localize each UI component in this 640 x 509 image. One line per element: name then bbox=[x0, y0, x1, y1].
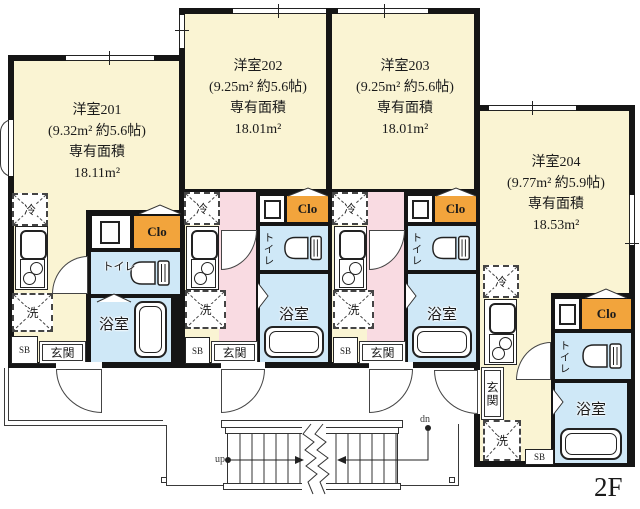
shelf-box-203 bbox=[408, 196, 432, 222]
window-tick bbox=[532, 101, 533, 115]
unit-204-text: 洋室204 (9.77m² 約5.9帖) 専有面積 18.53m² bbox=[482, 152, 630, 236]
closet-203: Clo bbox=[435, 196, 476, 222]
toilet-label-203: トイレ bbox=[409, 228, 423, 270]
unit-area-label: 専有面積 bbox=[14, 142, 180, 163]
fridge-box-202: 冷 bbox=[184, 192, 220, 225]
toilet-icon bbox=[580, 341, 626, 371]
unit-202-text: 洋室202 (9.25m² 約5.6帖) 専有面積 18.01m² bbox=[188, 56, 328, 140]
unit-area: 18.01m² bbox=[334, 119, 476, 140]
window-tick bbox=[175, 30, 189, 31]
entrance-203: 玄関 bbox=[359, 341, 406, 364]
unit-area-label: 専有面積 bbox=[482, 194, 630, 215]
window-201-top bbox=[66, 55, 154, 61]
bath-label-203: 浴室 bbox=[410, 304, 474, 322]
bathtub-icon bbox=[134, 301, 167, 358]
fridge-box-203: 冷 bbox=[332, 192, 368, 225]
up-arrow-origin bbox=[225, 457, 231, 463]
sink-icon bbox=[20, 230, 47, 260]
washer-label: 洗 bbox=[495, 435, 509, 447]
walkway-edge bbox=[4, 368, 5, 426]
unit-name: 洋室203 bbox=[334, 56, 476, 77]
entrance-label: 玄関 bbox=[50, 344, 74, 361]
unit-dims: (9.77m² 約5.9帖) bbox=[482, 173, 630, 194]
shelf-box-204 bbox=[555, 299, 579, 329]
entrance-opening-203 bbox=[369, 362, 413, 368]
kitchen-204 bbox=[484, 299, 517, 365]
shoebox-201: SB bbox=[11, 336, 38, 364]
walkway-edge bbox=[8, 420, 163, 421]
closet-door-chevron bbox=[287, 187, 329, 197]
unit-name: 洋室204 bbox=[482, 152, 630, 173]
bath-label-202: 浴室 bbox=[262, 304, 326, 322]
window-tick bbox=[384, 4, 385, 18]
shelf-box-201 bbox=[92, 216, 130, 248]
fridge-box-201: 冷 bbox=[12, 193, 48, 226]
washer-box-201: 洗 bbox=[12, 293, 53, 332]
bath-door-chevron bbox=[96, 293, 132, 303]
shelf-icon bbox=[412, 200, 429, 219]
sink-icon bbox=[339, 230, 366, 260]
unit-name: 洋室202 bbox=[188, 56, 328, 77]
shoebox-label: SB bbox=[19, 345, 30, 355]
unit-area-label: 専有面積 bbox=[334, 98, 476, 119]
unit-area-label: 専有面積 bbox=[188, 98, 328, 119]
closet-202: Clo bbox=[287, 196, 328, 222]
stove-icon bbox=[339, 259, 364, 288]
washer-label: 洗 bbox=[25, 307, 39, 319]
shelf-icon bbox=[100, 221, 120, 244]
shoebox-label: SB bbox=[534, 452, 545, 462]
stairs-up-label: up bbox=[203, 454, 225, 465]
closet-door-chevron bbox=[435, 187, 477, 197]
washer-box-204: 洗 bbox=[483, 420, 521, 461]
fridge-label: 冷 bbox=[23, 204, 37, 216]
window-203-top bbox=[338, 8, 428, 14]
entrance-202: 玄関 bbox=[211, 341, 258, 364]
closet-label: Clo bbox=[597, 306, 617, 322]
stove-icon bbox=[20, 259, 45, 288]
unit-name: 洋室201 bbox=[14, 100, 180, 121]
down-arrow-origin bbox=[425, 425, 431, 431]
fridge-label: 冷 bbox=[494, 276, 508, 288]
entrance-label: 玄関 bbox=[370, 344, 394, 361]
entrance-opening-202 bbox=[221, 362, 265, 368]
closet-label: Clo bbox=[446, 201, 466, 217]
toilet-icon bbox=[282, 233, 326, 263]
shoebox-202: SB bbox=[185, 337, 210, 364]
walkway-edge bbox=[4, 425, 167, 426]
walkway-edge bbox=[8, 368, 9, 421]
unit-area: 18.01m² bbox=[188, 119, 328, 140]
window-tick bbox=[278, 4, 279, 18]
closet-door-chevron bbox=[584, 288, 628, 299]
stairs-down-label: dn bbox=[420, 414, 440, 425]
unit-area: 18.11m² bbox=[14, 163, 180, 184]
entrance-door-arc-203 bbox=[369, 369, 413, 413]
sink-icon bbox=[489, 303, 516, 334]
floor-plan-2f: Clo Clo Clo Clo [data-name="closet-201"]… bbox=[0, 0, 640, 509]
unit-area: 18.53m² bbox=[482, 215, 630, 236]
entrance-opening-201 bbox=[56, 362, 102, 368]
closet-label: Clo bbox=[147, 224, 167, 240]
unit-dims: (9.32m² 約5.6帖) bbox=[14, 121, 180, 142]
bathtub-icon bbox=[412, 326, 472, 358]
bath-label-204: 浴室 bbox=[556, 399, 626, 417]
entrance-201: 玄関 bbox=[39, 341, 86, 364]
kitchen-202 bbox=[186, 226, 219, 290]
shelf-box-202 bbox=[260, 196, 284, 222]
shelf-icon bbox=[264, 200, 281, 219]
entrance-door-arc-202 bbox=[221, 369, 265, 413]
toilet-label-201: トイレ bbox=[93, 258, 145, 274]
fridge-box-204: 冷 bbox=[483, 265, 519, 298]
shoebox-203: SB bbox=[333, 337, 358, 364]
fridge-label: 冷 bbox=[195, 203, 209, 215]
bathtub-icon bbox=[560, 428, 622, 460]
toilet-icon bbox=[430, 233, 474, 263]
window-tick bbox=[109, 51, 110, 65]
unit-dims: (9.25m² 約5.6帖) bbox=[334, 77, 476, 98]
fridge-label: 冷 bbox=[343, 203, 357, 215]
stove-icon bbox=[489, 334, 514, 363]
toilet-label-202: トイレ bbox=[261, 228, 275, 270]
hallway-202 bbox=[219, 192, 256, 364]
washer-box-203: 洗 bbox=[333, 290, 374, 329]
bathtub-icon bbox=[264, 326, 324, 358]
hallway-203 bbox=[367, 192, 404, 364]
closet-label: Clo bbox=[298, 201, 318, 217]
shoebox-label: SB bbox=[192, 346, 203, 356]
closet-door-chevron bbox=[138, 204, 182, 215]
washer-label: 洗 bbox=[346, 304, 360, 316]
entrance-204: 玄関 bbox=[481, 367, 504, 420]
toilet-label-204: トイレ bbox=[557, 334, 571, 380]
entrance-door-arc-204 bbox=[434, 370, 478, 414]
entrance-label: 玄関 bbox=[222, 344, 246, 361]
unit-201-text: 洋室201 (9.32m² 約5.6帖) 専有面積 18.11m² bbox=[14, 100, 180, 184]
window-202-left bbox=[179, 15, 185, 48]
bath-label-201: 浴室 bbox=[92, 314, 136, 332]
entrance-door-arc-201 bbox=[56, 369, 102, 413]
shelf-icon bbox=[559, 304, 576, 325]
kitchen-201 bbox=[15, 226, 48, 290]
closet-204: Clo bbox=[582, 299, 631, 329]
window-tick bbox=[625, 243, 639, 244]
unit-203-text: 洋室203 (9.25m² 約5.6帖) 専有面積 18.01m² bbox=[334, 56, 476, 140]
stove-icon bbox=[191, 259, 216, 288]
shoebox-204: SB bbox=[525, 449, 554, 465]
washer-box-202: 洗 bbox=[185, 290, 226, 329]
closet-201: Clo bbox=[134, 216, 180, 248]
sink-icon bbox=[191, 230, 218, 260]
kitchen-203 bbox=[334, 226, 367, 290]
staircase bbox=[150, 412, 470, 509]
entrance-label: 玄関 bbox=[484, 381, 501, 407]
floor-label: 2F bbox=[594, 472, 638, 503]
washer-label: 洗 bbox=[198, 304, 212, 316]
window-202-top bbox=[233, 8, 326, 14]
unit-dims: (9.25m² 約5.6帖) bbox=[188, 77, 328, 98]
shoebox-label: SB bbox=[340, 346, 351, 356]
